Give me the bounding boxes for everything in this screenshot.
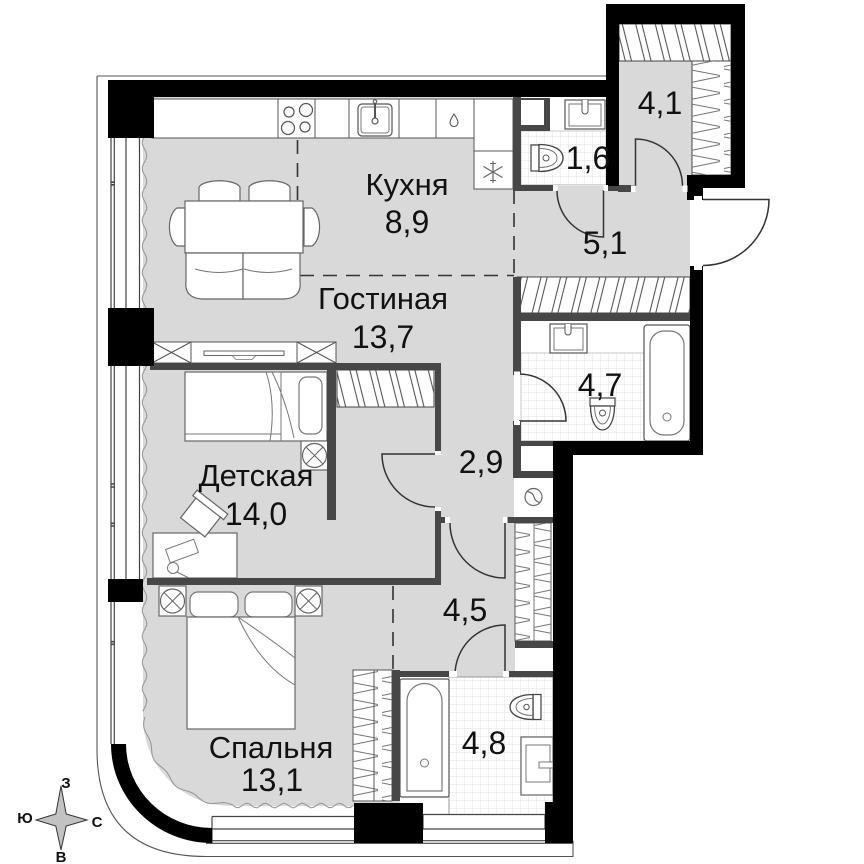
svg-text:13,1: 13,1 bbox=[241, 762, 303, 798]
svg-text:14,0: 14,0 bbox=[225, 496, 287, 532]
svg-text:4,5: 4,5 bbox=[443, 592, 487, 628]
svg-text:1,6: 1,6 bbox=[566, 140, 610, 176]
svg-text:4,8: 4,8 bbox=[462, 725, 506, 761]
svg-text:Кухня: Кухня bbox=[366, 167, 449, 202]
svg-text:Гостиная: Гостиная bbox=[318, 281, 448, 316]
svg-text:В: В bbox=[56, 849, 67, 864]
svg-text:13,7: 13,7 bbox=[352, 319, 414, 355]
svg-text:4,1: 4,1 bbox=[638, 85, 682, 121]
svg-text:5,1: 5,1 bbox=[583, 225, 627, 261]
svg-text:Ю: Ю bbox=[17, 810, 32, 827]
svg-text:З: З bbox=[61, 775, 70, 792]
svg-text:2,9: 2,9 bbox=[459, 444, 503, 480]
svg-text:8,9: 8,9 bbox=[385, 204, 429, 240]
svg-text:Спальня: Спальня bbox=[209, 730, 334, 765]
svg-text:Детская: Детская bbox=[199, 458, 314, 493]
svg-text:4,7: 4,7 bbox=[578, 367, 622, 403]
svg-text:С: С bbox=[92, 814, 103, 831]
